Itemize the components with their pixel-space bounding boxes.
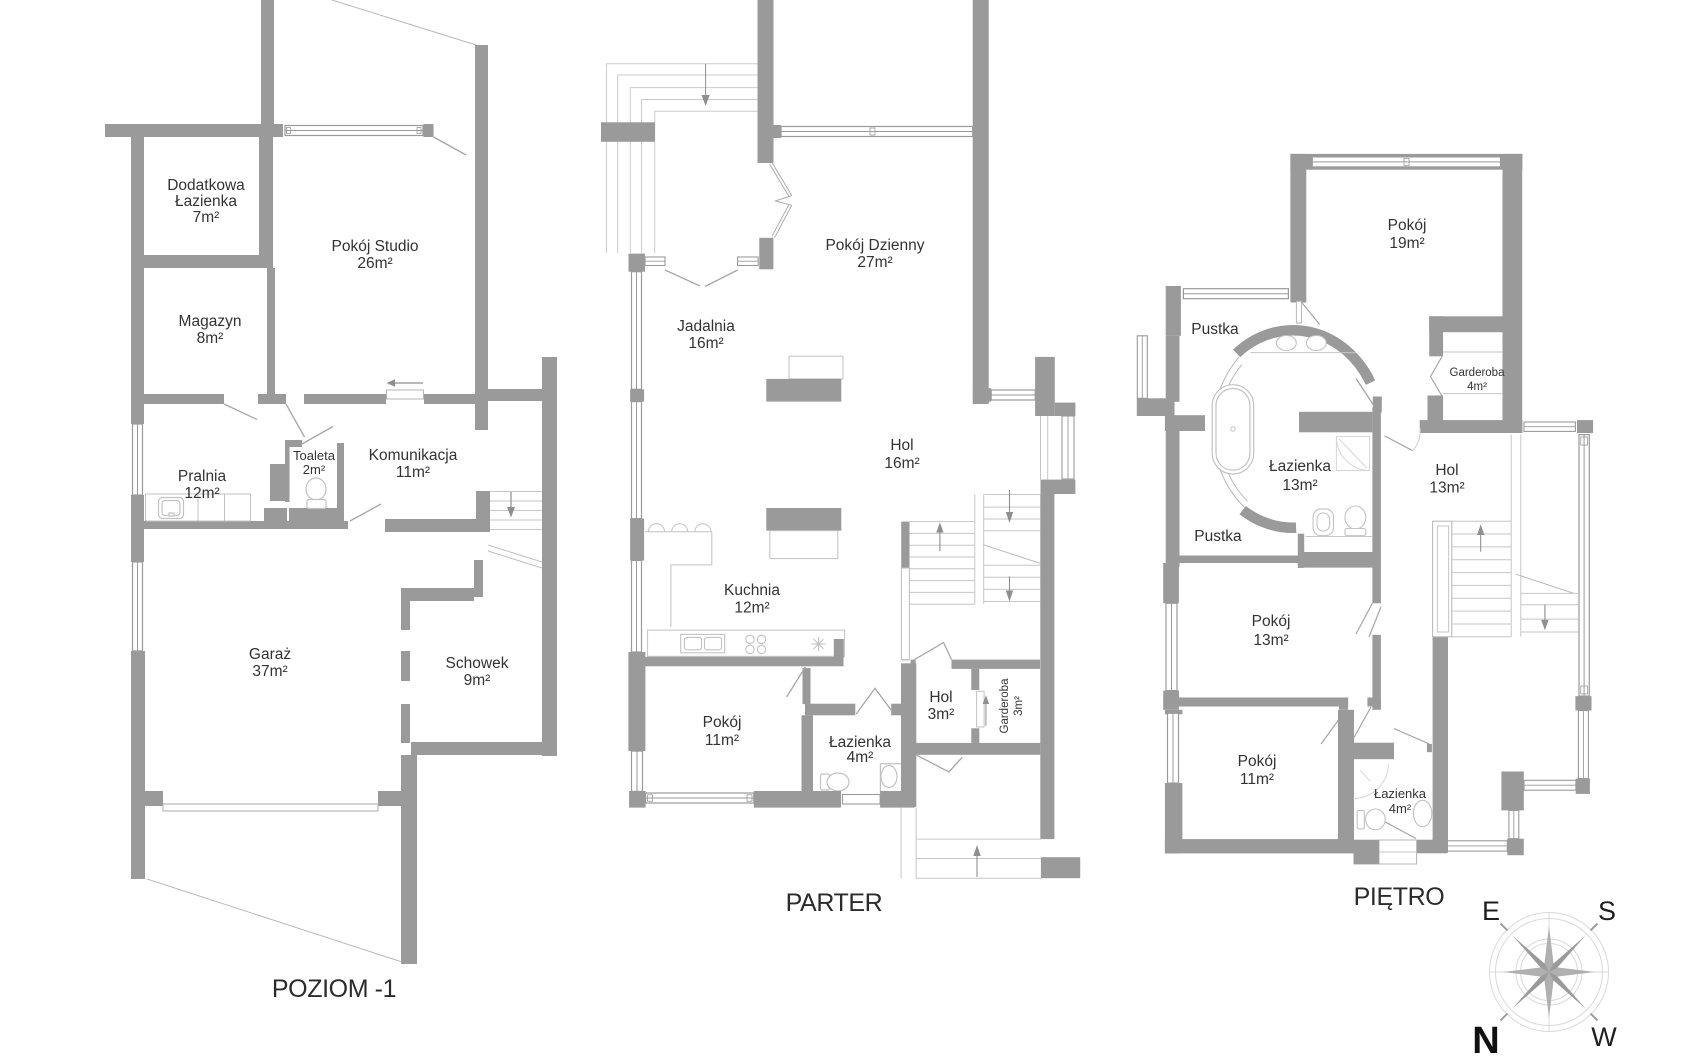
svg-text:Pokój Studio: Pokój Studio	[331, 238, 418, 255]
svg-text:Pralnia: Pralnia	[178, 468, 227, 485]
svg-text:Hol: Hol	[890, 437, 913, 454]
svg-text:12m²: 12m²	[734, 600, 769, 617]
svg-text:3m²: 3m²	[1013, 696, 1025, 716]
svg-text:N: N	[1472, 1020, 1499, 1060]
svg-text:37m²: 37m²	[252, 663, 287, 680]
svg-text:13m²: 13m²	[1429, 480, 1464, 497]
svg-text:S: S	[1598, 896, 1616, 926]
svg-text:Łazienka: Łazienka	[1374, 786, 1427, 801]
svg-text:16m²: 16m²	[884, 455, 919, 472]
svg-text:9m²: 9m²	[464, 672, 491, 689]
svg-text:Łazienka: Łazienka	[175, 193, 237, 210]
svg-text:Pokój: Pokój	[1238, 753, 1277, 770]
svg-text:19m²: 19m²	[1389, 235, 1424, 252]
svg-text:PIĘTRO: PIĘTRO	[1354, 883, 1445, 911]
svg-text:Hol: Hol	[1435, 462, 1458, 479]
svg-text:8m²: 8m²	[197, 330, 224, 347]
svg-text:E: E	[1482, 896, 1500, 926]
svg-text:3m²: 3m²	[928, 706, 955, 723]
svg-text:13m²: 13m²	[1253, 632, 1288, 649]
svg-text:Kuchnia: Kuchnia	[724, 582, 780, 599]
svg-text:Łazienka: Łazienka	[1269, 458, 1331, 475]
svg-text:Pokój: Pokój	[1388, 217, 1427, 234]
svg-text:4m²: 4m²	[847, 749, 874, 766]
svg-text:Komunikacja: Komunikacja	[369, 447, 458, 464]
svg-text:Pokój: Pokój	[703, 714, 742, 731]
svg-text:16m²: 16m²	[688, 335, 723, 352]
svg-text:Toaleta: Toaleta	[293, 448, 336, 463]
svg-text:Pokój: Pokój	[1252, 613, 1291, 630]
svg-text:26m²: 26m²	[357, 255, 392, 272]
svg-text:Pustka: Pustka	[1194, 528, 1242, 545]
svg-text:2m²: 2m²	[303, 462, 326, 477]
svg-text:Magazyn: Magazyn	[179, 313, 242, 330]
svg-text:4m²: 4m²	[1467, 381, 1487, 393]
svg-text:Pokój Dzienny: Pokój Dzienny	[825, 237, 924, 254]
svg-text:Garderoba: Garderoba	[1450, 367, 1506, 379]
svg-text:Pustka: Pustka	[1191, 321, 1239, 338]
svg-text:13m²: 13m²	[1282, 477, 1317, 494]
svg-text:4m²: 4m²	[1389, 801, 1412, 816]
svg-text:12m²: 12m²	[184, 485, 219, 502]
svg-text:Hol: Hol	[929, 689, 952, 706]
svg-text:POZIOM -1: POZIOM -1	[272, 975, 396, 1003]
svg-text:Dodatkowa: Dodatkowa	[167, 177, 245, 194]
svg-text:27m²: 27m²	[857, 254, 892, 271]
svg-text:11m²: 11m²	[396, 464, 430, 481]
svg-text:11m²: 11m²	[1240, 771, 1274, 788]
svg-text:Garderoba: Garderoba	[999, 678, 1011, 734]
svg-text:Jadalnia: Jadalnia	[677, 318, 735, 335]
svg-text:PARTER: PARTER	[786, 889, 883, 917]
svg-text:Schowek: Schowek	[446, 655, 509, 672]
svg-text:7m²: 7m²	[193, 209, 220, 226]
svg-text:W: W	[1591, 1022, 1617, 1052]
svg-text:Garaż: Garaż	[249, 646, 291, 663]
svg-text:11m²: 11m²	[705, 732, 739, 749]
